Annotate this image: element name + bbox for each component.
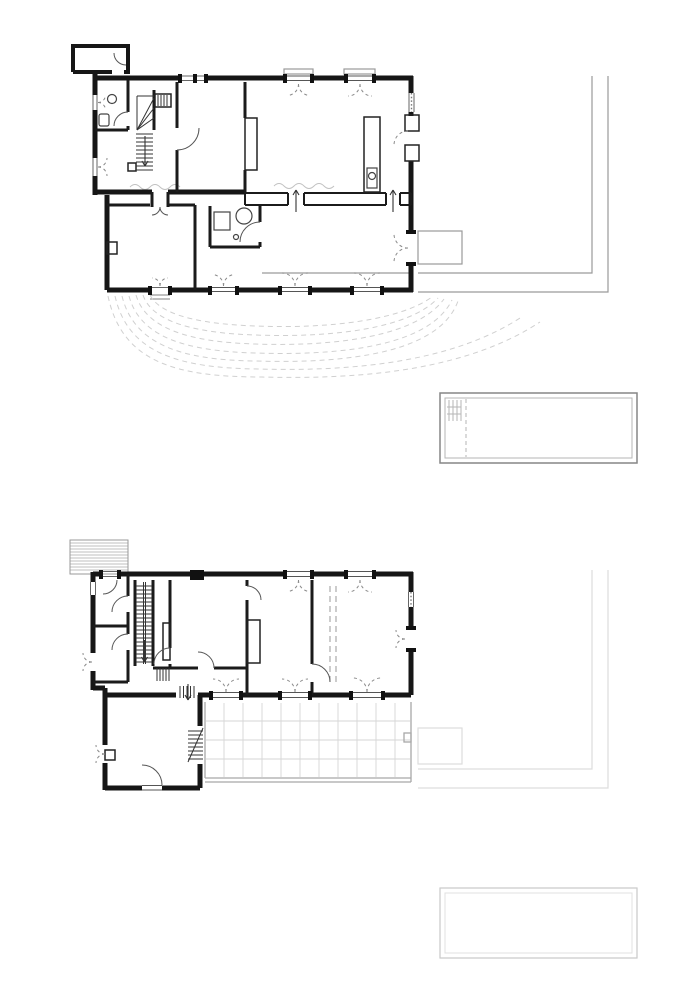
- gf-door-arcs-dashed: [98, 84, 408, 286]
- gf-hedge-lines: [130, 184, 334, 190]
- gf-contour-paths: [108, 295, 540, 377]
- ff-pool-outer: [440, 888, 637, 958]
- ff-site-walls: [418, 570, 608, 788]
- gf-pool-outer: [440, 393, 637, 463]
- gf-site-walls: [150, 69, 608, 299]
- gf-pool-inner: [445, 398, 632, 458]
- gf-sills: [93, 76, 414, 292]
- ff-sills: [91, 572, 414, 791]
- gf-walls-heavy: [95, 74, 413, 292]
- ff-roof-hatch-border: [70, 540, 128, 574]
- drawing-sheet: [0, 0, 700, 992]
- gf-annex-walls: [73, 44, 128, 74]
- gf-spine-wall: [245, 193, 411, 205]
- ff-ridge-dashed: [330, 586, 336, 684]
- gf-door-arcs-solid: [114, 53, 260, 242]
- ff-wall-features: [105, 620, 260, 760]
- gf-walls-medium: [95, 80, 260, 290]
- ff-door-arcs-solid: [103, 580, 330, 785]
- gf-arrows: [142, 136, 396, 212]
- plan-canvas: [0, 0, 700, 992]
- ff-pool-inner: [445, 893, 632, 953]
- ff-terrace-grid: [206, 703, 410, 777]
- ff-roof-hatch: [70, 543, 128, 570]
- ff-terrace-border: [205, 702, 411, 782]
- ff-walls-heavy: [93, 572, 413, 790]
- gf-fixtures: [99, 95, 377, 240]
